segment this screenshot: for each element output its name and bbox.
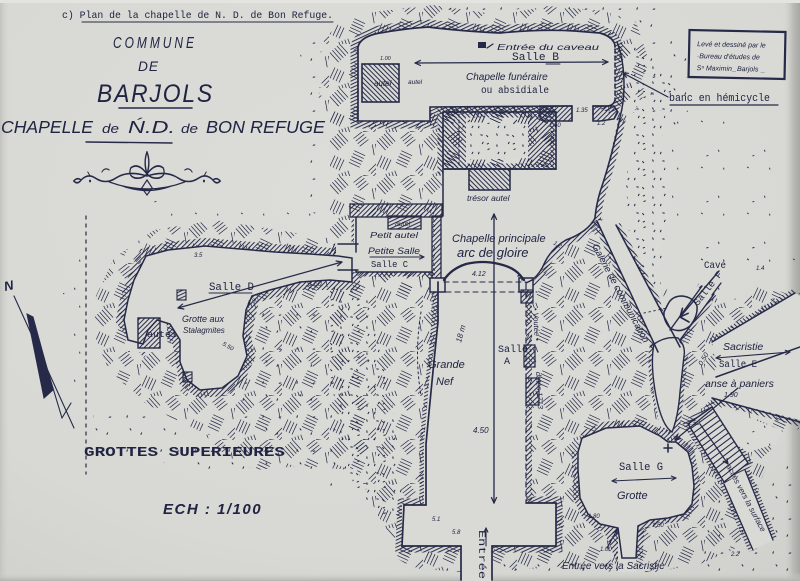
svg-text:Grotte aux: Grotte aux: [182, 314, 225, 324]
svg-text:3.60: 3.60: [308, 281, 322, 288]
svg-text:1.50: 1.50: [549, 123, 561, 129]
svg-text:ECH : 1/100: ECH : 1/100: [163, 501, 262, 518]
svg-text:Entrée: Entrée: [475, 530, 487, 579]
svg-text:Chapelle funéraire: Chapelle funéraire: [466, 72, 548, 83]
svg-text:1.35: 1.35: [576, 108, 588, 114]
svg-text:c) Plan de la chapelle de N. D: c) Plan de la chapelle de N. D. de Bon R…: [62, 10, 333, 22]
svg-text:trésor autel: trésor autel: [467, 193, 511, 203]
svg-text:autel: autel: [374, 79, 392, 88]
svg-text:de: de: [181, 121, 198, 136]
svg-text:CHAPELLE: CHAPELLE: [1, 117, 93, 137]
svg-text:COMMUNE: COMMUNE: [113, 35, 197, 52]
svg-text:autel: autel: [147, 330, 177, 340]
svg-text:Nef: Nef: [436, 376, 454, 388]
svg-text:Levé et dessiné par le: Levé et dessiné par le: [697, 41, 766, 49]
svg-text:1.00: 1.00: [380, 56, 392, 62]
svg-text:Entrée vers la Sacristie: Entrée vers la Sacristie: [562, 561, 665, 572]
svg-text:2.2: 2.2: [730, 552, 740, 558]
svg-text:Chapelle principale: Chapelle principale: [452, 233, 546, 245]
svg-text:Grotte: Grotte: [617, 490, 648, 502]
svg-text:Salle B: Salle B: [512, 52, 559, 64]
svg-text:• Voutée •: • Voutée •: [531, 308, 542, 342]
svg-text:A: A: [504, 357, 510, 368]
svg-text:5.8: 5.8: [452, 530, 461, 536]
svg-text:1.50: 1.50: [652, 523, 664, 529]
svg-text:·Bureau d'études de: ·Bureau d'études de: [697, 53, 760, 61]
svg-text:Petit autel: Petit autel: [370, 230, 419, 240]
svg-text:1.50: 1.50: [688, 421, 700, 427]
svg-text:3.5: 3.5: [194, 253, 203, 259]
svg-text:Ń.D.: Ń.D.: [128, 117, 175, 137]
svg-text:Salle C: Salle C: [371, 259, 408, 270]
svg-text:Salle G: Salle G: [619, 462, 663, 474]
svg-text:BON REFUGE: BON REFUGE: [206, 117, 325, 137]
svg-text:banc en hémicycle: banc en hémicycle: [669, 93, 770, 105]
svg-text:DE: DE: [138, 58, 159, 74]
svg-text:autel: autel: [395, 221, 411, 228]
svg-text:arc de gloire: arc de gloire: [457, 245, 529, 260]
svg-text:Sⁿ Maximin _ Barjols _: Sⁿ Maximin _ Barjols _: [697, 65, 766, 73]
svg-text:Salle D: Salle D: [209, 282, 254, 294]
svg-text:BARJOLS: BARJOLS: [97, 80, 214, 108]
svg-text:Petite Salle: Petite Salle: [368, 246, 420, 256]
svg-text:Salle E: Salle E: [719, 359, 757, 371]
svg-text:de: de: [102, 121, 119, 136]
svg-text:4.12: 4.12: [472, 271, 486, 278]
svg-text:1.80: 1.80: [588, 514, 600, 520]
svg-text:Grande: Grande: [428, 359, 465, 371]
svg-text:1.90: 1.90: [724, 392, 738, 399]
svg-text:GROTTES SUPERIEURES: GROTTES SUPERIEURES: [84, 446, 285, 461]
svg-text:Sacristie: Sacristie: [723, 341, 763, 353]
svg-text:ou absidiale: ou absidiale: [481, 85, 549, 97]
svg-text:anse à paniers: anse à paniers: [705, 378, 775, 390]
svg-text:5.1: 5.1: [432, 517, 440, 523]
svg-text:4.50: 4.50: [473, 426, 489, 435]
svg-text:Salle: Salle: [498, 344, 528, 356]
svg-text:1.2: 1.2: [597, 121, 606, 127]
svg-text:autel: autel: [408, 79, 423, 86]
svg-text:Stalagmites: Stalagmites: [183, 326, 225, 335]
svg-text:1.4: 1.4: [756, 266, 765, 272]
svg-text:1.00: 1.00: [600, 547, 612, 553]
svg-text:Entrée du caveau: Entrée du caveau: [497, 42, 599, 52]
